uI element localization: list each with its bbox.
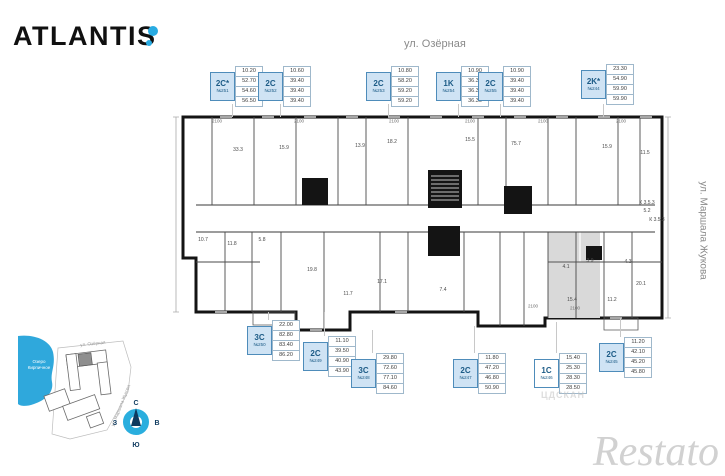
leader-line: [324, 312, 325, 336]
current-section-marker[interactable]: [78, 353, 92, 366]
unit-card-№255[interactable]: 2C№25510.9039.4039.4039.40: [478, 66, 531, 107]
unit-card-№246[interactable]: 1C№24615.4025.3028.3028.50: [534, 353, 587, 394]
unit-area-values: 10.6039.4039.4039.40: [283, 66, 311, 107]
unit-type-label: 2C: [265, 79, 275, 88]
unit-type-label: 2C: [460, 366, 470, 375]
room-area-label: 15.9: [279, 145, 289, 151]
leader-line: [556, 322, 557, 353]
leader-line: [372, 330, 373, 353]
unit-card-№245[interactable]: 2C№24511.2042.1045.2045.80: [599, 337, 652, 378]
unit-type-cell: 2C№249: [303, 342, 328, 371]
unit-card-№252[interactable]: 2C№25210.6039.4039.4039.40: [258, 66, 311, 107]
room-area-label: 10.7: [198, 237, 208, 243]
room-area-label: 11.7: [343, 291, 352, 297]
unit-type-cell: 2C№253: [366, 72, 391, 101]
room-area-label: 11.8: [227, 241, 236, 247]
unit-type-cell: 2C№247: [453, 359, 478, 388]
room-area-label: 15.9: [602, 144, 612, 150]
unit-type-cell: 2C*№251: [210, 72, 235, 101]
street-label-right: ул. Маршала Жукова: [698, 176, 709, 286]
unit-type-cell: 1K№254: [436, 72, 461, 101]
room-area-label: 7.4: [440, 287, 447, 293]
dimension-label: 2100: [538, 119, 548, 124]
watermark-restato: Restato: [593, 428, 719, 476]
compass-south-label: Ю: [132, 442, 139, 449]
room-area-label: 17.1: [377, 279, 387, 285]
unit-type-cell: 2K*№244: [581, 70, 606, 99]
unit-number-label: №255: [484, 88, 496, 94]
stair-treads: [431, 176, 459, 200]
unit-type-label: 1K: [443, 79, 453, 88]
unit-number-label: №246: [540, 375, 552, 381]
leader-line: [620, 318, 621, 337]
room-area-label: К 3.5.3: [639, 200, 654, 206]
unit-area-values: 11.8047.2046.8050.90: [478, 353, 506, 394]
unit-type-label: 3C: [254, 333, 264, 342]
unit-area-values: 22.0082.8083.4086.20: [272, 320, 300, 361]
leader-line: [603, 104, 604, 117]
unit-number-label: №251: [216, 88, 228, 94]
unit-type-cell: 3C№248: [351, 359, 376, 388]
dimension-label: 2100: [616, 119, 626, 124]
unit-area-value: 45.80: [624, 367, 652, 378]
lake-label-line2: Кирпичное: [22, 365, 56, 371]
unit-type-cell: 3C№250: [247, 326, 272, 355]
room-area-label: 5.8: [259, 237, 266, 243]
unit-area-values: 29.8072.6077.1084.60: [376, 353, 404, 394]
unit-type-label: 2C*: [216, 79, 229, 88]
building-block-main: [66, 350, 111, 399]
brand-logo: ATLANTIS: [13, 21, 156, 52]
unit-card-№248[interactable]: 3C№24829.8072.6077.1084.60: [351, 353, 404, 394]
compass-west-label: З: [113, 420, 118, 427]
unit-type-label: 2C: [373, 79, 383, 88]
lake-label: Озеро Кирпичное: [22, 359, 56, 370]
room-area-label: 33.3: [233, 147, 243, 153]
room-area-label: К 3.5.3: [649, 217, 664, 223]
room-area-label: 15.4: [567, 297, 577, 303]
unit-type-label: 2K*: [587, 77, 600, 86]
unit-type-cell: 2C№255: [478, 72, 503, 101]
unit-number-label: №245: [605, 359, 617, 365]
dimension-label: 2100: [528, 304, 538, 309]
unit-number-label: №250: [253, 342, 265, 348]
room-area-label: 3.9: [587, 258, 594, 264]
room-area-label: 11.2: [607, 297, 616, 303]
unit-type-label: 3C: [358, 366, 368, 375]
unit-number-label: №252: [264, 88, 276, 94]
unit-area-value: 59.90: [606, 94, 634, 105]
leader-line: [474, 326, 475, 353]
unit-area-value: 39.40: [283, 96, 311, 107]
unit-number-label: №247: [459, 375, 471, 381]
room-area-label: 11.5: [640, 150, 649, 156]
unit-area-value: 86.20: [272, 350, 300, 361]
site-street-top-label: ул. Озёрная: [80, 340, 106, 348]
dimension-label: 2100: [212, 119, 222, 124]
unit-number-label: №249: [309, 358, 321, 364]
unit-number-label: №253: [372, 88, 384, 94]
unit-area-values: 15.4025.3028.3028.50: [559, 353, 587, 394]
watermark-small: ЦДСКАН: [541, 390, 585, 400]
room-area-label: 75.7: [511, 141, 521, 147]
unit-type-label: 2C: [606, 350, 616, 359]
unit-area-values: 10.9039.4039.4039.40: [503, 66, 531, 107]
unit-type-cell: 2C№252: [258, 72, 283, 101]
unit-type-label: 2C: [310, 349, 320, 358]
unit-card-№244[interactable]: 2K*№24423.3054.9059.9059.90: [581, 64, 634, 105]
unit-number-label: №244: [587, 86, 599, 92]
street-label-top: ул. Озёрная: [404, 38, 466, 50]
room-area-label: 4.3: [625, 259, 632, 265]
room-area-label: 19.8: [307, 267, 317, 273]
dimension-label: 2100: [294, 119, 304, 124]
compass-north-label: С: [133, 400, 138, 407]
room-area-label: 5.2: [644, 208, 651, 214]
unit-area-value: 84.60: [376, 383, 404, 394]
unit-card-№250[interactable]: 3C№25022.0082.8083.4086.20: [247, 320, 300, 361]
dimension-label: 2100: [465, 119, 475, 124]
unit-type-label: 1C: [541, 366, 551, 375]
compass-east-label: В: [154, 420, 159, 427]
unit-area-value: 39.40: [503, 96, 531, 107]
unit-area-values: 23.3054.9059.9059.90: [606, 64, 634, 105]
dimension-label: 2100: [570, 306, 580, 311]
brand-dot-small-icon: [146, 40, 152, 46]
unit-card-№253[interactable]: 2C№25310.8058.2059.2059.20: [366, 66, 419, 107]
unit-area-values: 11.2042.1045.2045.80: [624, 337, 652, 378]
brand-dot-icon: [148, 26, 158, 36]
dimension-label: 2100: [389, 119, 399, 124]
unit-type-label: 2C: [485, 79, 495, 88]
room-area-label: 20.1: [636, 281, 646, 287]
room-area-label: 18.2: [387, 139, 397, 145]
room-area-label: 4.1: [563, 264, 570, 270]
unit-area-value: 50.90: [478, 383, 506, 394]
unit-type-cell: 2C№245: [599, 343, 624, 372]
room-area-label: 15.5: [465, 137, 475, 143]
unit-type-cell: 1C№246: [534, 359, 559, 388]
unit-card-№249[interactable]: 2C№24911.1039.5040.9043.90: [303, 336, 356, 377]
room-area-label: 13.9: [355, 143, 365, 149]
unit-area-value: 59.20: [391, 96, 419, 107]
unit-area-values: 10.8058.2059.2059.20: [391, 66, 419, 107]
building-block-4: [86, 412, 103, 428]
unit-number-label: №248: [357, 375, 369, 381]
unit-card-№247[interactable]: 2C№24711.8047.2046.8050.90: [453, 353, 506, 394]
unit-number-label: №254: [442, 88, 454, 94]
unit-card-№251[interactable]: 2C*№25110.2052.7054.6056.50: [210, 66, 263, 107]
leader-line: [268, 312, 269, 320]
